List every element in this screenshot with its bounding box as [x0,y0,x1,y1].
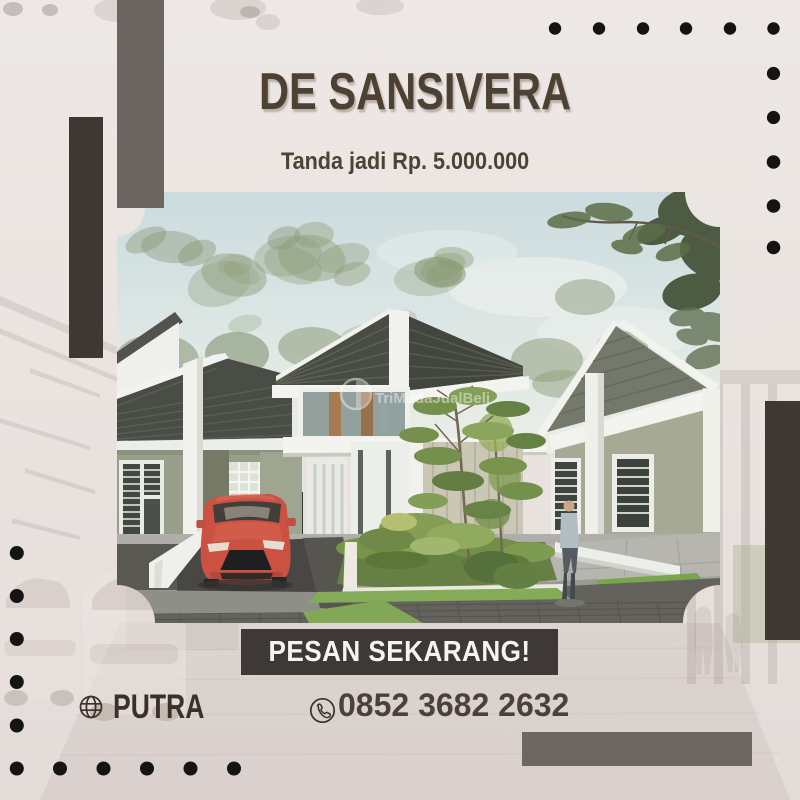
svg-text:TriMudaJualBeli: TriMudaJualBeli [375,390,490,407]
